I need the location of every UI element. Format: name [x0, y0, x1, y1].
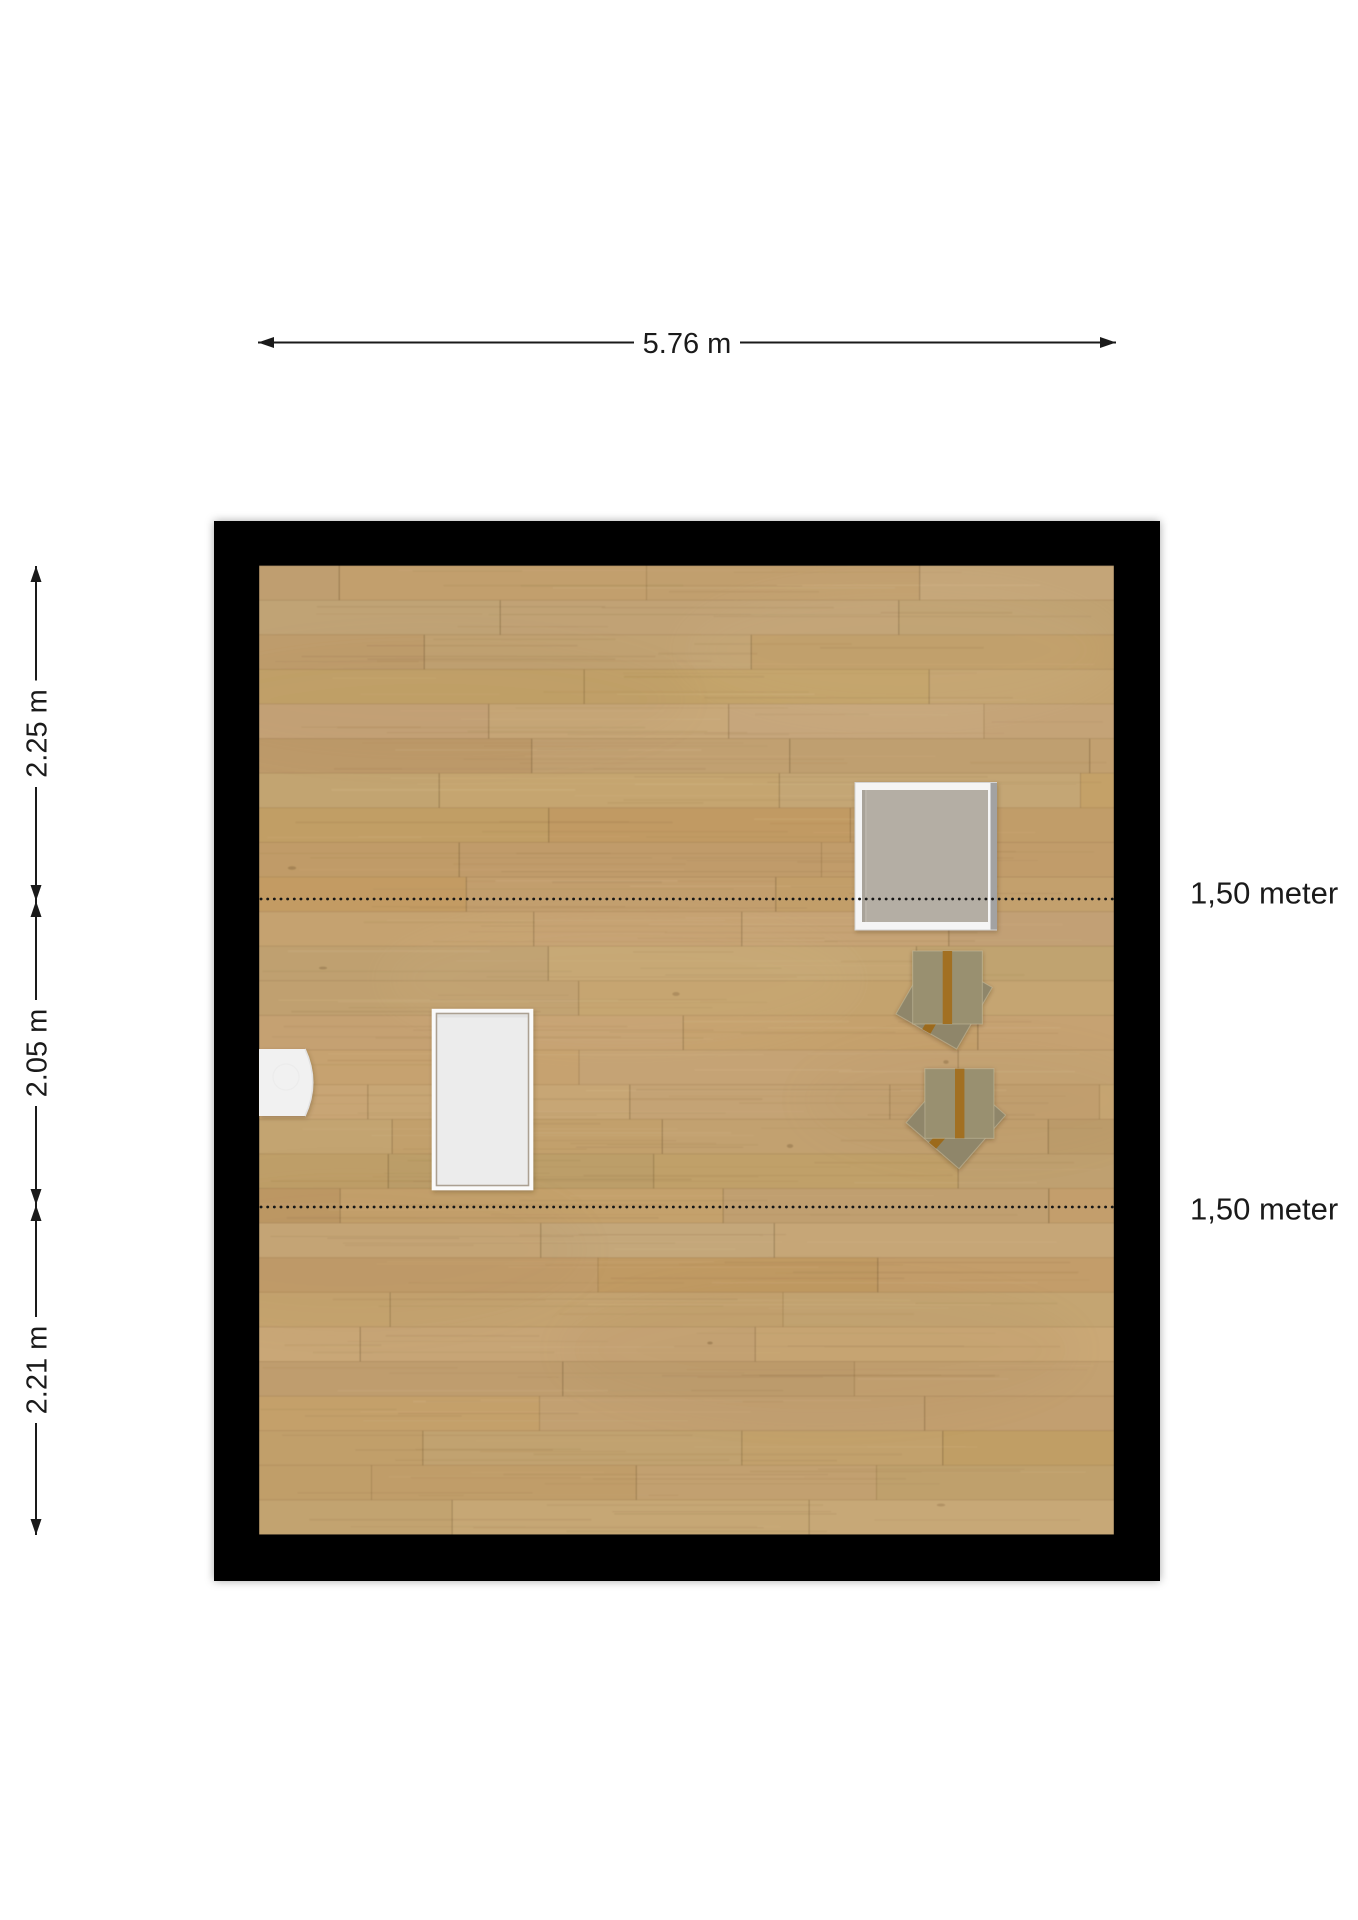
svg-text:1,50 meter: 1,50 meter — [1190, 1191, 1338, 1226]
svg-text:2.21 m: 2.21 m — [21, 1326, 53, 1415]
svg-text:5.76 m: 5.76 m — [643, 328, 732, 360]
svg-text:2.25 m: 2.25 m — [21, 689, 53, 778]
svg-text:2.05 m: 2.05 m — [21, 1009, 53, 1098]
svg-text:1,50 meter: 1,50 meter — [1190, 875, 1338, 910]
